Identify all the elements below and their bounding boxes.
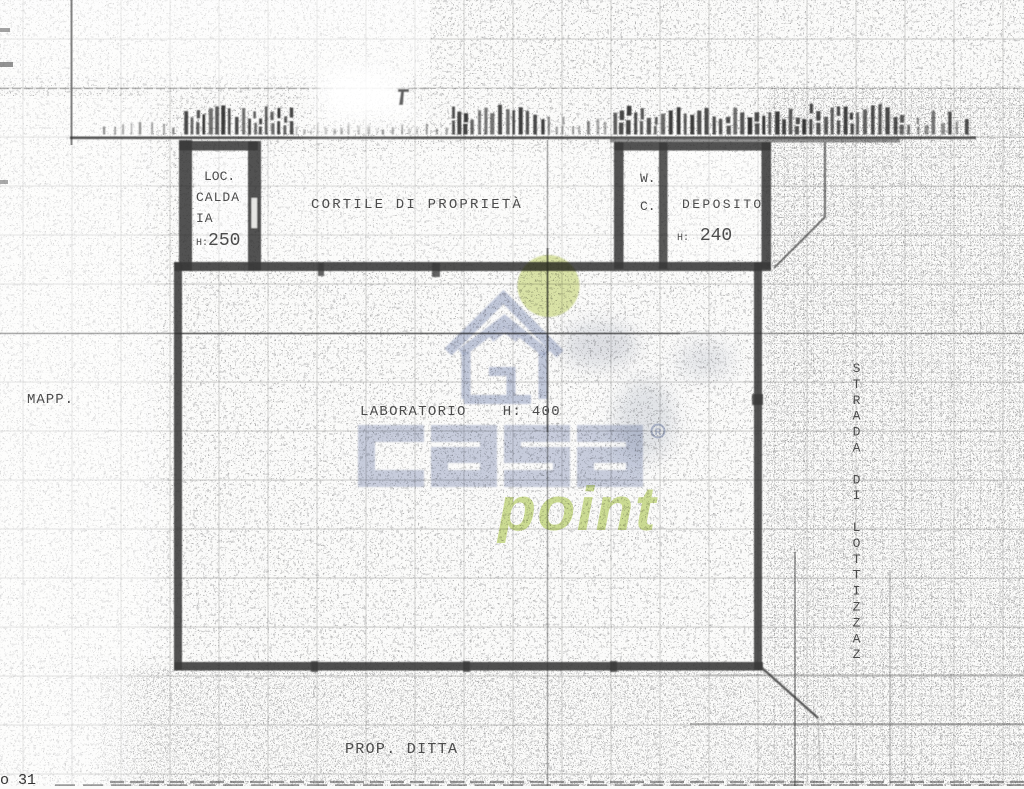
svg-text:R: R xyxy=(655,427,662,437)
svg-text:point: point xyxy=(496,475,658,544)
